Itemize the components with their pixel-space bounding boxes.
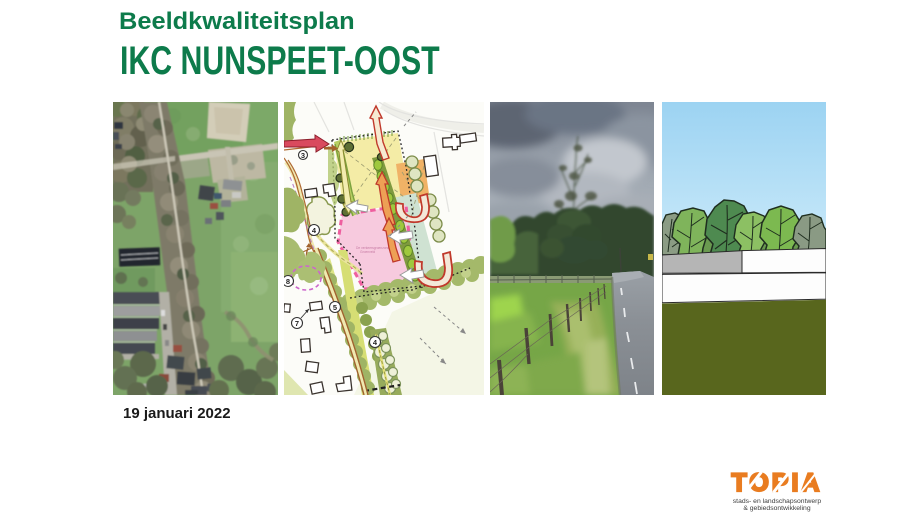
svg-text:Groenveld: Groenveld <box>360 250 375 254</box>
svg-text:5: 5 <box>333 303 337 312</box>
svg-text:8: 8 <box>286 277 290 286</box>
svg-text:7: 7 <box>295 319 299 328</box>
svg-text:3: 3 <box>301 151 305 160</box>
